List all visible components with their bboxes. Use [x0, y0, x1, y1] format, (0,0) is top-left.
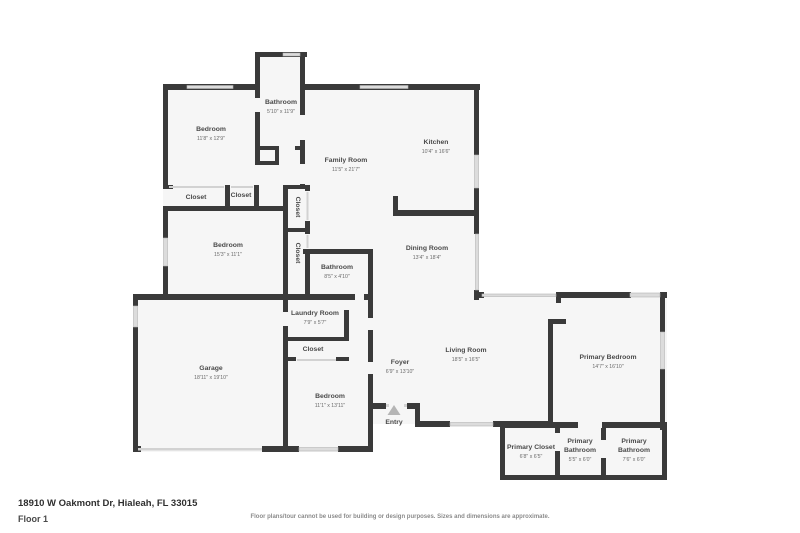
room-label-bedroom-1: Bedroom — [196, 126, 226, 133]
room-label-family-room: Family Room — [325, 157, 368, 164]
room-dims-dining-room: 13'4" x 18'4" — [413, 255, 442, 261]
room-dims-laundry-room: 7'9" x 5'7" — [304, 320, 327, 326]
room-label-closet-2: Closet — [231, 192, 253, 199]
room-dims-living-room: 18'5" x 16'5" — [452, 357, 481, 363]
room-label-primary-bathroom-2: Primary — [621, 438, 647, 445]
entry-door-frame-right — [404, 404, 407, 407]
room-label-primary-bathroom-2: Bathroom — [618, 447, 650, 454]
room-label-closet-3: Closet — [294, 197, 301, 219]
room-dims-bedroom-2: 15'3" x 11'1" — [214, 252, 242, 258]
room-label-bathroom-top: Bathroom — [265, 99, 297, 106]
room-label-bedroom-2: Bedroom — [213, 242, 243, 249]
room-dims-primary-bathroom-1: 5'5" x 6'0" — [569, 457, 592, 463]
property-address: 18910 W Oakmont Dr, Hialeah, FL 33015 — [18, 498, 197, 509]
room-label-primary-bathroom-1: Bathroom — [564, 447, 596, 454]
room-label-closet-5: Closet — [303, 346, 325, 353]
room-dims-kitchen: 10'4" x 16'6" — [422, 149, 451, 155]
room-label-garage: Garage — [199, 365, 223, 372]
entry-label: Entry — [385, 419, 403, 426]
room-label-bathroom-2: Bathroom — [321, 264, 353, 271]
room-dims-bedroom-3: 11'1" x 13'11" — [315, 403, 346, 409]
room-label-closet-4: Closet — [294, 243, 301, 265]
room-label-primary-bedroom: Primary Bedroom — [579, 354, 636, 361]
room-label-dining-room: Dining Room — [406, 245, 448, 252]
room-label-laundry-room: Laundry Room — [291, 310, 339, 317]
room-label-closet-1: Closet — [186, 194, 208, 201]
room-dims-primary-bedroom: 14'7" x 16'10" — [592, 364, 623, 370]
room-dims-garage: 18'11" x 19'10" — [194, 375, 228, 381]
room-dims-foyer: 6'9" x 13'10" — [386, 369, 415, 375]
entry-door-frame-left — [386, 404, 389, 407]
floorplan-page: Bathroom5'10" x 11'9"Bedroom11'8" x 12'9… — [0, 0, 800, 533]
room-dims-primary-closet: 6'8" x 6'5" — [520, 454, 543, 460]
room-dims-bedroom-1: 11'8" x 12'9" — [197, 136, 225, 142]
room-dims-family-room: 11'5" x 21'7" — [332, 167, 360, 173]
floorplan-svg: Bathroom5'10" x 11'9"Bedroom11'8" x 12'9… — [0, 0, 800, 533]
room-label-bedroom-3: Bedroom — [315, 393, 345, 400]
room-label-living-room: Living Room — [445, 347, 486, 354]
garage-door-line — [138, 448, 262, 451]
room-dims-bathroom-2: 8'5" x 4'10" — [324, 274, 350, 280]
room-label-primary-bathroom-1: Primary — [567, 438, 593, 445]
room-label-primary-closet: Primary Closet — [507, 444, 556, 451]
room-label-kitchen: Kitchen — [424, 139, 449, 146]
room-label-foyer: Foyer — [391, 359, 410, 366]
floor-areas — [133, 52, 667, 480]
room-dims-primary-bathroom-2: 7'6" x 6'0" — [623, 457, 646, 463]
room-dims-bathroom-top: 5'10" x 11'9" — [267, 109, 295, 115]
disclaimer-text: Floor plans/tour cannot be used for buil… — [0, 514, 800, 520]
